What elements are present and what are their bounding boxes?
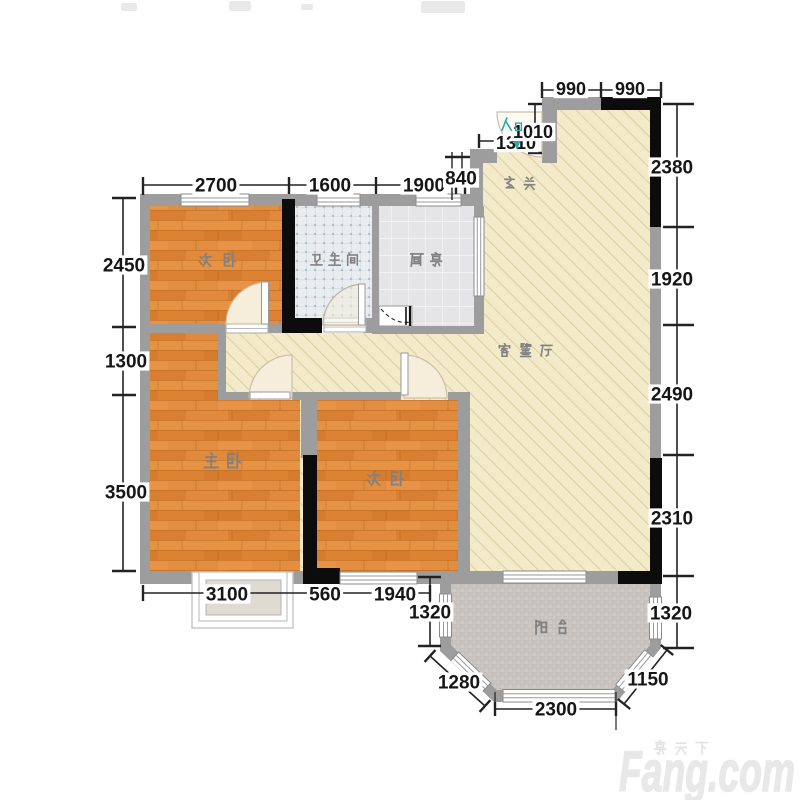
svg-text:1920: 1920 (651, 270, 693, 291)
svg-text:2380: 2380 (651, 158, 693, 179)
svg-text:1280: 1280 (438, 673, 480, 694)
svg-text:3100: 3100 (206, 585, 248, 606)
svg-text:1900: 1900 (403, 176, 445, 197)
svg-text:1300: 1300 (105, 352, 147, 373)
svg-text:Fang.com: Fang.com (619, 740, 795, 800)
svg-text:990: 990 (615, 79, 645, 99)
svg-text:840: 840 (445, 169, 477, 190)
svg-text:2310: 2310 (651, 509, 693, 530)
svg-text:2700: 2700 (195, 176, 237, 197)
svg-text:3500: 3500 (105, 483, 147, 504)
svg-text:2490: 2490 (651, 385, 693, 406)
svg-text:990: 990 (556, 79, 586, 99)
svg-text:1320: 1320 (650, 604, 692, 625)
svg-text:2450: 2450 (103, 256, 145, 277)
svg-text:1150: 1150 (627, 670, 668, 691)
svg-text:1010: 1010 (513, 122, 553, 142)
svg-text:1320: 1320 (409, 603, 451, 624)
svg-text:1600: 1600 (309, 176, 351, 197)
svg-text:2300: 2300 (535, 700, 577, 721)
svg-text:560: 560 (309, 585, 341, 606)
